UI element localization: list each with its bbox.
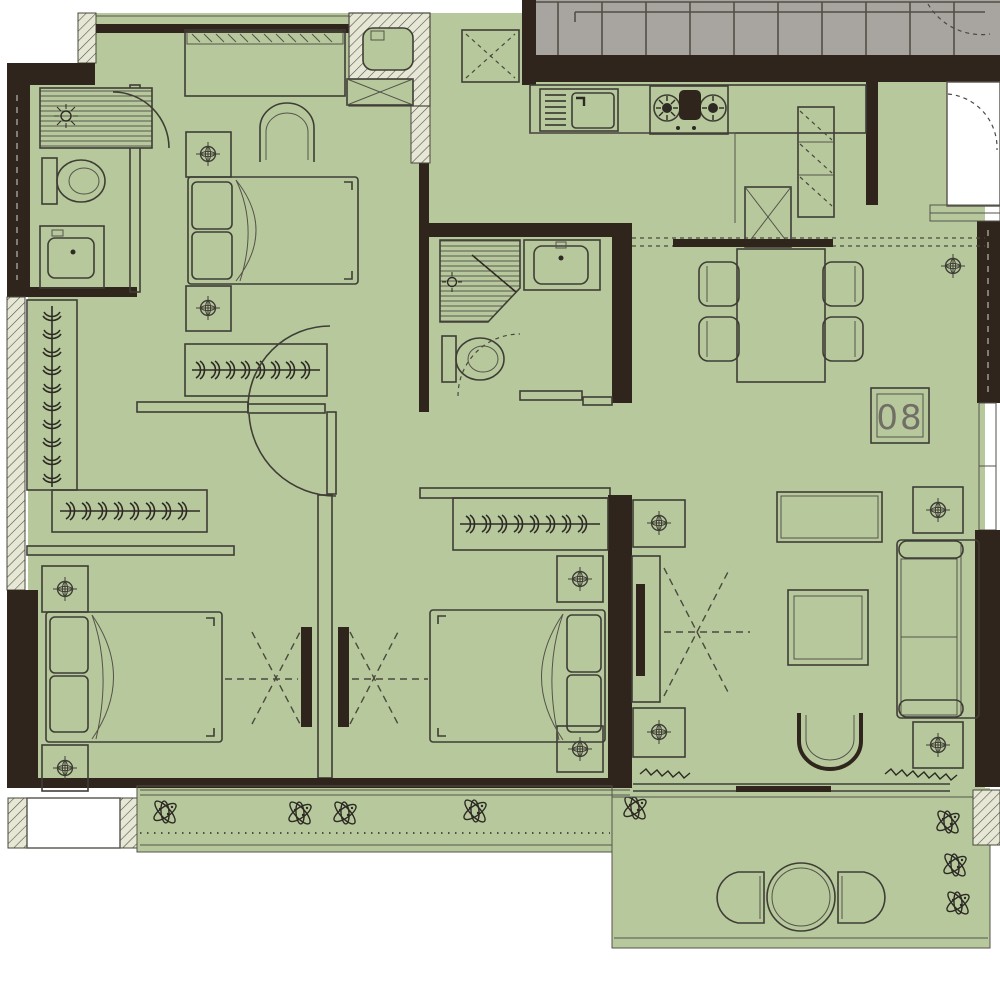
tv-panel <box>338 627 349 727</box>
floor-plan-canvas: 08 <box>0 0 1000 981</box>
sliding-door <box>736 786 831 792</box>
tv-panel <box>636 584 645 676</box>
stair-landing <box>522 0 1000 57</box>
pier-top-left <box>78 13 96 63</box>
unit-number-label: 08 <box>876 398 923 438</box>
pier-bottom-left <box>8 798 27 848</box>
pier-balcony <box>973 790 1000 845</box>
floor-plan-drawing: 08 <box>0 0 1000 981</box>
entry-landing <box>947 82 1000 206</box>
tv-panel <box>301 627 312 727</box>
beam <box>673 239 833 247</box>
stair-wall <box>535 55 1000 82</box>
ac-platform <box>27 798 120 848</box>
wall-hatched-left <box>7 297 25 590</box>
stairwell <box>522 0 1000 85</box>
